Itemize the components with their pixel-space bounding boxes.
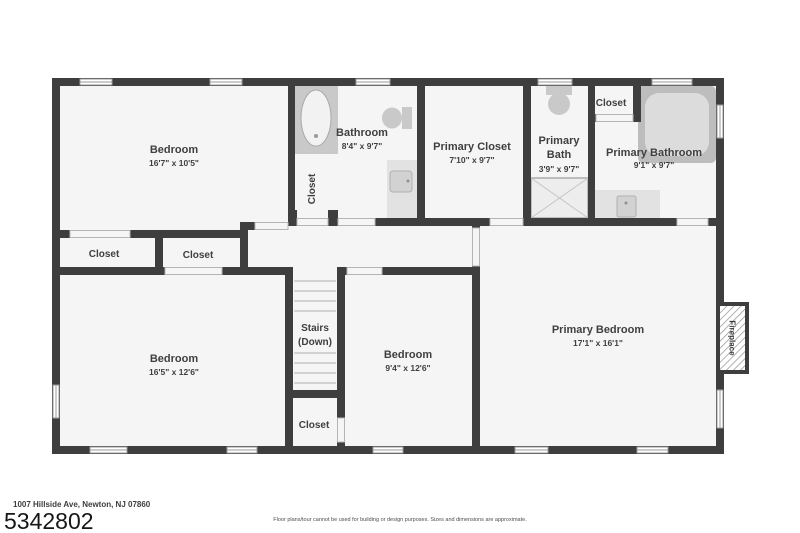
- room-closet-left: Closet: [89, 249, 120, 260]
- window-icon: [210, 79, 242, 85]
- room-name: Primary Bathroom: [606, 147, 702, 159]
- window-icon: [538, 79, 572, 85]
- door-bedroom-top: [255, 223, 288, 230]
- room-name: (Down): [298, 337, 332, 348]
- sink-icon: [595, 190, 660, 218]
- door-hall-closet: [596, 115, 633, 122]
- room-name: Bath: [547, 149, 572, 161]
- fireplace-icon: Fireplace: [716, 302, 749, 374]
- room-name: Bathroom: [336, 127, 388, 139]
- room-dims: 16'7" x 10'5": [149, 158, 199, 168]
- window-icon: [717, 390, 723, 428]
- room-dims: 9'1" x 9'7": [634, 160, 674, 170]
- room-name: Bedroom: [384, 349, 433, 361]
- room-name: Primary Closet: [433, 141, 511, 153]
- door-bedroom-middle: [347, 268, 382, 275]
- floor-plan-drawing: Fireplace Bedroom 16'7" x 10'5" Bathroom…: [0, 0, 800, 533]
- door-closet-mid: [165, 268, 222, 275]
- door-bathroom: [338, 219, 375, 226]
- window-icon: [515, 447, 548, 453]
- window-icon: [227, 447, 257, 453]
- room-name: Closet: [307, 173, 318, 204]
- room-name: Bedroom: [150, 144, 199, 156]
- window-icon: [80, 79, 112, 85]
- fireplace-label: Fireplace: [728, 320, 737, 356]
- window-icon: [373, 447, 403, 453]
- room-dims: 9'4" x 12'6": [385, 363, 430, 373]
- window-icon: [652, 79, 692, 85]
- room-name: Closet: [89, 249, 120, 260]
- toilet-icon: [382, 107, 412, 129]
- room-name: Stairs: [301, 323, 329, 334]
- room-dims: 7'10" x 9'7": [449, 155, 494, 165]
- room-dims: 16'5" x 12'6": [149, 367, 199, 377]
- room-dims: 3'9" x 9'7": [539, 164, 579, 174]
- floor-area: [52, 78, 724, 454]
- window-icon: [53, 385, 59, 418]
- bathtub-icon: [295, 86, 338, 154]
- disclaimer-text: Floor plans/tour cannot be used for buil…: [0, 517, 800, 523]
- room-name: Closet: [596, 98, 627, 109]
- sink-icon: [387, 160, 417, 218]
- door-primary-bathroom: [677, 219, 708, 226]
- room-name: Closet: [183, 250, 214, 261]
- room-hall-closet: Closet: [596, 98, 627, 109]
- door-closet-left: [70, 231, 130, 238]
- door-stairs-closet: [338, 418, 345, 442]
- door-bathroom-closet: [297, 219, 328, 226]
- room-name: Closet: [299, 420, 330, 431]
- room-dims: 17'1" x 16'1": [573, 338, 623, 348]
- room-closet-mid: Closet: [183, 250, 214, 261]
- shower-icon: [531, 178, 588, 218]
- door-primary-bedroom: [473, 228, 480, 266]
- room-stairs-closet: Closet: [299, 420, 330, 431]
- room-name: Bedroom: [150, 353, 199, 365]
- window-icon: [717, 105, 723, 138]
- door-primary-closet: [490, 219, 523, 226]
- room-name: Primary Bedroom: [552, 324, 645, 336]
- room-bathroom-closet: Closet: [307, 173, 318, 204]
- room-dims: 8'4" x 9'7": [342, 141, 382, 151]
- window-icon: [637, 447, 668, 453]
- window-icon: [90, 447, 127, 453]
- room-name: Primary: [539, 135, 581, 147]
- floor-plan-page: Fireplace Bedroom 16'7" x 10'5" Bathroom…: [0, 0, 800, 533]
- window-icon: [356, 79, 390, 85]
